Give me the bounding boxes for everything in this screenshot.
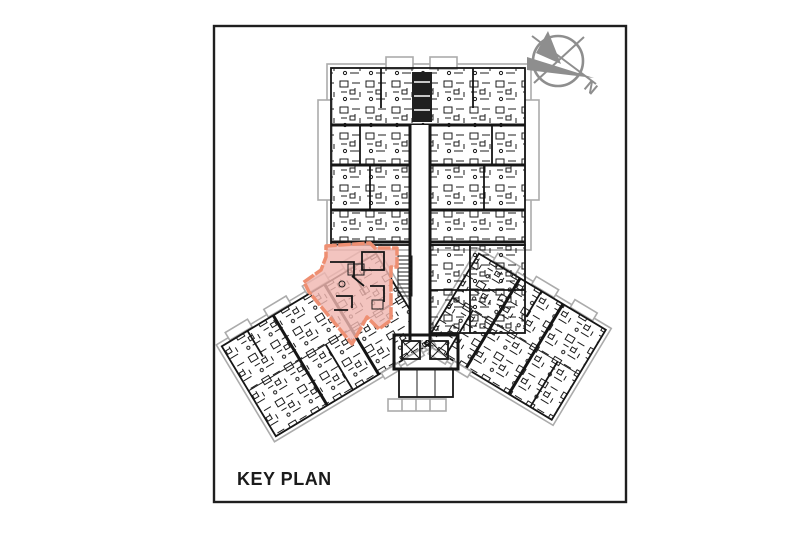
- floor-plan: N KEY PLAN: [0, 0, 800, 533]
- service-core: [412, 72, 432, 122]
- balcony-row: [388, 399, 446, 411]
- key-plan-label: KEY PLAN: [237, 469, 332, 489]
- page: N KEY PLAN: [0, 0, 800, 533]
